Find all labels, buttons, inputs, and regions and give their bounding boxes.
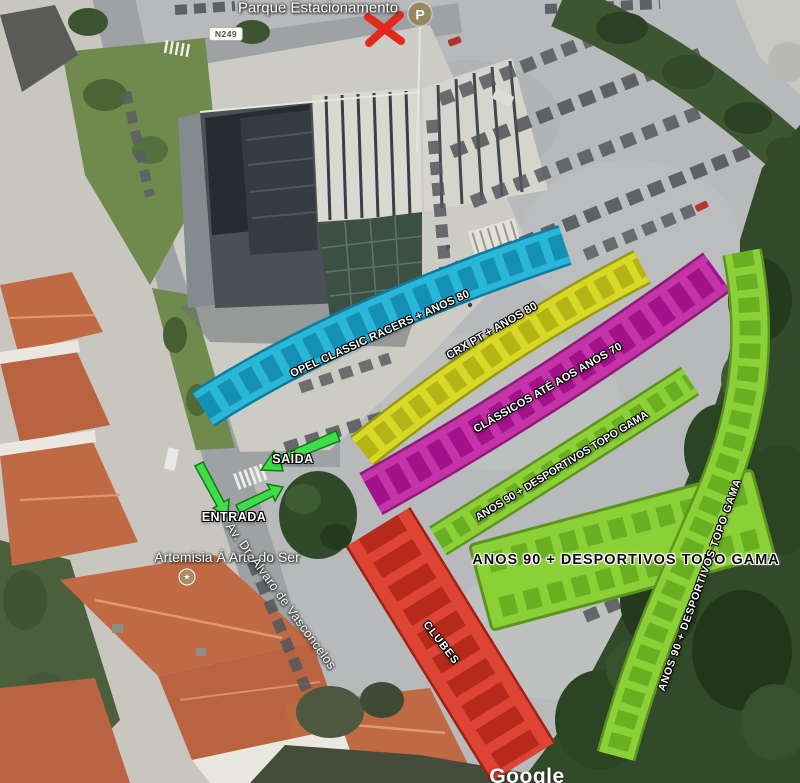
road-badge-n249: N249 (209, 27, 243, 41)
google-watermark: Google (489, 765, 564, 783)
parking-icon: P (409, 3, 432, 26)
map-scene (0, 0, 800, 783)
poi-label: Artemisia Á Arte do Ser (154, 549, 300, 565)
poi-pin-icon[interactable]: ★ (179, 569, 196, 586)
zone-label-anos90-block: ANOS 90 + DESPORTIVOS TOPO GAMA (472, 552, 780, 568)
map-title: Parque Estacionamento (238, 0, 398, 17)
satellite-map[interactable]: Parque Estacionamento N249 P OPEL CLASSI… (0, 0, 800, 783)
exit-label: SAÍDA (272, 452, 313, 466)
poi-pin-glyph: ★ (183, 573, 190, 582)
entrance-tree (279, 471, 357, 559)
